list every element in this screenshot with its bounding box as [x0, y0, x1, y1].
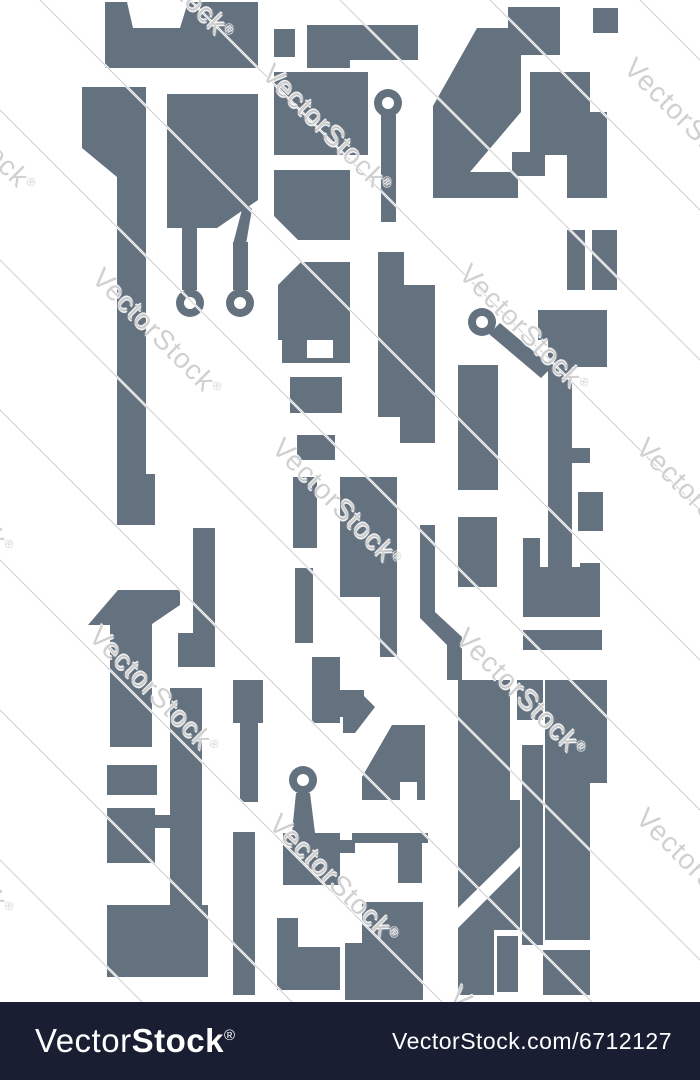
vectorstock-logo: VectorStock® [35, 1022, 236, 1060]
circuit-shape [593, 8, 618, 33]
circuit-shape [543, 950, 590, 995]
circuit-shape [293, 477, 317, 548]
circuit-shape [298, 947, 340, 990]
circuit-shape [193, 528, 215, 633]
circuit-shape [233, 680, 263, 723]
circuit-shape [433, 28, 521, 172]
circuit-shape [82, 87, 155, 525]
circuit-shape [274, 29, 295, 57]
circuit-shape [572, 448, 590, 463]
circuit-shape [512, 152, 545, 176]
circuit-board-artwork [0, 0, 700, 1080]
circuit-shape [548, 440, 572, 577]
circuit-pad-hole [476, 316, 488, 328]
logo-vector-text: Vector [35, 1022, 132, 1059]
circuit-shape [107, 765, 157, 795]
circuit-shape [522, 745, 543, 945]
circuit-shape [277, 918, 298, 990]
circuit-shape [517, 680, 543, 720]
registered-mark-icon: ® [224, 1027, 236, 1044]
circuit-shape [567, 112, 607, 198]
circuit-shape [545, 680, 607, 783]
circuit-shape [283, 833, 340, 885]
circuit-shape [107, 808, 155, 863]
circuit-shape [545, 783, 590, 940]
circuit-shape [274, 72, 368, 155]
footer-bar: VectorStock® VectorStock.com/6712127 [0, 1002, 700, 1080]
circuit-shape [307, 340, 333, 358]
circuit-shape [340, 840, 355, 853]
circuit-shape [381, 115, 396, 222]
circuit-shape [362, 725, 425, 800]
circuit-shape [458, 365, 498, 490]
circuit-shape [292, 793, 315, 833]
circuit-shape [178, 633, 215, 667]
circuit-shape [458, 680, 520, 908]
circuit-pad-hole [234, 297, 246, 309]
circuit-shape [458, 517, 497, 587]
circuit-shape [508, 7, 560, 55]
circuit-shape [274, 170, 350, 240]
circuit-shape [523, 630, 602, 650]
circuit-shape [233, 832, 255, 995]
circuit-shape [578, 492, 603, 531]
circuit-shape [233, 242, 248, 290]
circuit-shape [548, 325, 572, 457]
circuit-shape [580, 563, 600, 617]
stock-image-preview: VectorStock®VectorStock®VectorStock®Vect… [0, 0, 700, 1080]
circuit-shape [240, 723, 258, 802]
circuit-shape [398, 840, 422, 883]
circuit-pad-hole [297, 774, 309, 786]
circuit-shape [567, 230, 585, 290]
logo-stock-text: Stock [132, 1022, 224, 1059]
circuit-shape [530, 100, 567, 155]
circuit-shape [105, 2, 258, 68]
circuit-shape [182, 228, 197, 290]
circuit-shape [88, 590, 180, 747]
circuit-pad-hole [382, 97, 394, 109]
circuit-shape [107, 905, 208, 977]
image-url-text: VectorStock.com/6712127 [392, 1028, 672, 1055]
circuit-shape [312, 657, 340, 723]
circuit-shape [433, 172, 518, 198]
circuit-shape [155, 815, 170, 828]
circuit-shape [295, 568, 313, 643]
circuit-shape [592, 230, 617, 290]
circuit-shape [497, 936, 518, 992]
circuit-shape [420, 612, 462, 680]
